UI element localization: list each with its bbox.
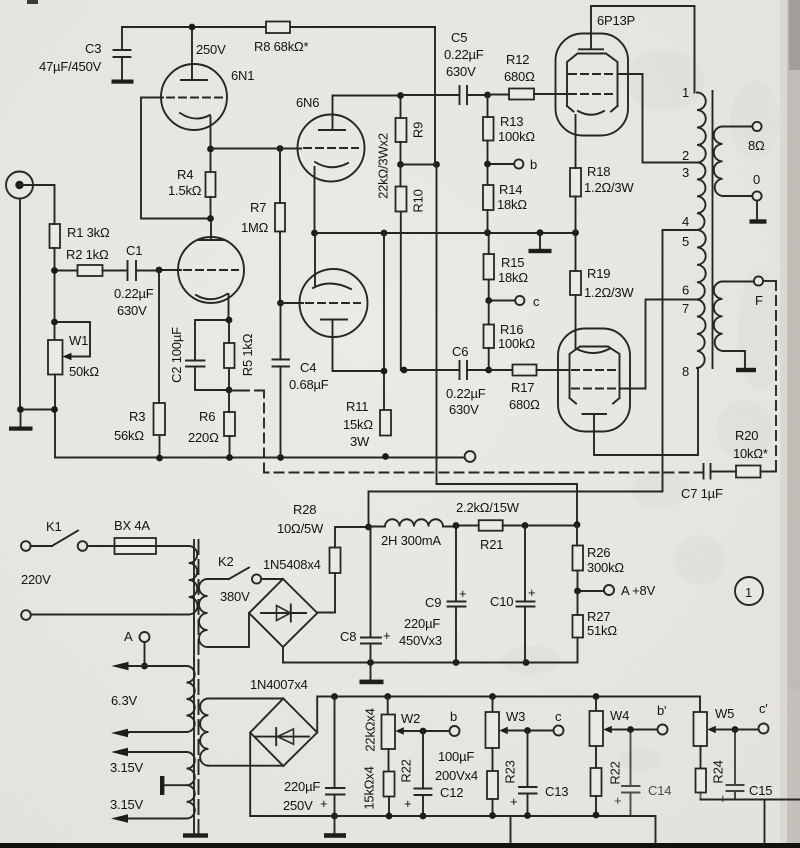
svg-text:R3: R3	[129, 409, 145, 424]
svg-text:0.68µF: 0.68µF	[289, 377, 329, 392]
svg-text:C3: C3	[85, 41, 101, 56]
svg-text:3: 3	[682, 165, 689, 180]
svg-text:680Ω: 680Ω	[504, 69, 535, 84]
svg-text:C1: C1	[126, 243, 142, 258]
svg-text:2: 2	[682, 148, 689, 163]
svg-text:W1: W1	[69, 333, 88, 348]
svg-text:R22: R22	[608, 761, 623, 784]
svg-text:K2: K2	[218, 554, 234, 569]
svg-text:C12: C12	[440, 785, 463, 800]
svg-text:4: 4	[682, 214, 689, 229]
svg-text:b: b	[450, 709, 457, 724]
svg-text:c: c	[533, 294, 540, 309]
svg-text:15kΩ: 15kΩ	[343, 417, 373, 432]
svg-text:100µF: 100µF	[438, 749, 474, 764]
svg-text:R9: R9	[411, 122, 426, 138]
svg-text:100kΩ: 100kΩ	[498, 129, 535, 144]
svg-text:250V: 250V	[283, 798, 313, 813]
svg-text:R14: R14	[499, 182, 522, 197]
svg-text:1: 1	[745, 585, 752, 600]
svg-text:R5 1kΩ: R5 1kΩ	[240, 333, 255, 376]
svg-text:R21: R21	[480, 537, 503, 552]
svg-text:R22: R22	[399, 759, 414, 782]
svg-text:6N1: 6N1	[231, 68, 254, 83]
svg-text:18kΩ: 18kΩ	[497, 197, 527, 212]
svg-text:630V: 630V	[449, 402, 479, 417]
svg-text:R11: R11	[346, 399, 368, 414]
svg-text:C15: C15	[749, 783, 772, 798]
svg-text:1.2Ω/3W: 1.2Ω/3W	[584, 285, 634, 300]
svg-text:R15: R15	[501, 255, 524, 270]
svg-text:50kΩ: 50kΩ	[69, 364, 99, 379]
svg-text:51kΩ: 51kΩ	[587, 623, 617, 638]
svg-text:R12: R12	[506, 52, 529, 67]
svg-text:1N5408x4: 1N5408x4	[263, 557, 321, 572]
svg-text:R1 3kΩ: R1 3kΩ	[67, 225, 110, 240]
svg-text:W2: W2	[401, 711, 420, 726]
svg-text:10kΩ*: 10kΩ*	[733, 446, 768, 461]
svg-text:300kΩ: 300kΩ	[587, 560, 624, 575]
svg-text:c': c'	[759, 701, 768, 716]
svg-text:+: +	[528, 585, 535, 600]
svg-text:0.22µF: 0.22µF	[446, 386, 486, 401]
svg-text:R24: R24	[711, 760, 726, 783]
svg-text:6.3V: 6.3V	[111, 693, 137, 708]
svg-text:R10: R10	[411, 189, 426, 212]
svg-text:C6: C6	[452, 344, 468, 359]
svg-text:220V: 220V	[21, 572, 51, 587]
svg-text:R17: R17	[511, 380, 534, 395]
svg-text:7: 7	[682, 301, 689, 316]
svg-text:22kΩx4: 22kΩx4	[363, 708, 378, 751]
svg-text:+: +	[404, 796, 411, 811]
svg-text:R16: R16	[500, 322, 523, 337]
svg-text:C8: C8	[340, 629, 356, 644]
svg-text:+: +	[459, 586, 466, 601]
svg-text:C10: C10	[490, 594, 513, 609]
svg-text:250V: 250V	[196, 42, 226, 57]
svg-text:6N6: 6N6	[296, 95, 319, 110]
svg-text:R18: R18	[587, 164, 610, 179]
svg-text:630V: 630V	[117, 303, 147, 318]
svg-text:1: 1	[682, 85, 689, 100]
svg-text:R19: R19	[587, 266, 610, 281]
svg-text:R7: R7	[250, 200, 266, 215]
svg-text:R27: R27	[587, 609, 610, 624]
svg-text:0.22µF: 0.22µF	[444, 47, 484, 62]
svg-text:3.15V: 3.15V	[110, 797, 144, 812]
svg-text:+: +	[320, 796, 327, 811]
svg-text:C7 1µF: C7 1µF	[681, 486, 723, 501]
svg-text:450Vx3: 450Vx3	[399, 633, 442, 648]
svg-text:18kΩ: 18kΩ	[498, 270, 528, 285]
svg-text:+: +	[719, 791, 726, 806]
svg-text:3W: 3W	[350, 434, 370, 449]
svg-text:C2 100µF: C2 100µF	[169, 327, 184, 383]
svg-text:22kΩ/3Wx2: 22kΩ/3Wx2	[376, 133, 391, 199]
svg-text:R28: R28	[293, 502, 316, 517]
svg-text:b: b	[530, 157, 537, 172]
svg-text:R26: R26	[587, 545, 610, 560]
svg-text:C14: C14	[648, 783, 671, 798]
svg-text:BX 4A: BX 4A	[114, 518, 150, 533]
svg-text:R23: R23	[503, 760, 518, 783]
svg-text:A: A	[124, 629, 133, 644]
svg-text:56kΩ: 56kΩ	[114, 428, 144, 443]
svg-text:R2 1kΩ: R2 1kΩ	[66, 247, 109, 262]
svg-text:47µF/450V: 47µF/450V	[39, 59, 102, 74]
svg-text:0: 0	[753, 172, 760, 187]
svg-text:W3: W3	[506, 709, 525, 724]
svg-text:100kΩ: 100kΩ	[498, 336, 535, 351]
svg-text:220µF: 220µF	[404, 616, 440, 631]
svg-text:K1: K1	[46, 519, 62, 534]
svg-text:R8 68kΩ*: R8 68kΩ*	[254, 39, 309, 54]
svg-text:R13: R13	[500, 114, 523, 129]
svg-text:1.2Ω/3W: 1.2Ω/3W	[584, 180, 634, 195]
svg-text:A +8V: A +8V	[621, 583, 656, 598]
svg-text:380V: 380V	[220, 589, 250, 604]
svg-text:+: +	[510, 794, 517, 809]
svg-text:220Ω: 220Ω	[188, 430, 219, 445]
svg-text:C9: C9	[425, 595, 441, 610]
svg-text:C4: C4	[300, 360, 316, 375]
svg-text:+: +	[614, 793, 621, 808]
svg-text:C5: C5	[451, 30, 467, 45]
svg-text:1.5kΩ: 1.5kΩ	[168, 183, 202, 198]
svg-text:6P13P: 6P13P	[597, 13, 635, 28]
svg-text:0.22µF: 0.22µF	[114, 286, 154, 301]
svg-text:1MΩ: 1MΩ	[241, 220, 269, 235]
svg-text:2.2kΩ/15W: 2.2kΩ/15W	[456, 500, 520, 515]
svg-text:W5: W5	[715, 706, 734, 721]
svg-text:8: 8	[682, 364, 689, 379]
svg-text:5: 5	[682, 234, 689, 249]
svg-text:680Ω: 680Ω	[509, 397, 540, 412]
svg-text:8Ω: 8Ω	[748, 138, 765, 153]
svg-text:200Vx4: 200Vx4	[435, 768, 478, 783]
svg-text:220µF: 220µF	[284, 779, 320, 794]
svg-text:2H 300mA: 2H 300mA	[381, 533, 441, 548]
svg-text:R20: R20	[735, 428, 758, 443]
svg-text:6: 6	[682, 283, 689, 298]
svg-text:W4: W4	[610, 708, 629, 723]
svg-text:F: F	[755, 293, 763, 308]
svg-text:c: c	[555, 709, 562, 724]
svg-text:+: +	[383, 628, 390, 643]
svg-text:C13: C13	[545, 784, 568, 799]
svg-text:b': b'	[657, 703, 666, 718]
svg-text:R4: R4	[177, 167, 193, 182]
svg-text:R6: R6	[199, 409, 215, 424]
svg-text:1N4007x4: 1N4007x4	[250, 677, 308, 692]
svg-text:630V: 630V	[446, 64, 476, 79]
svg-text:15kΩx4: 15kΩx4	[362, 766, 377, 809]
svg-text:3.15V: 3.15V	[110, 760, 144, 775]
svg-text:10Ω/5W: 10Ω/5W	[277, 521, 324, 536]
